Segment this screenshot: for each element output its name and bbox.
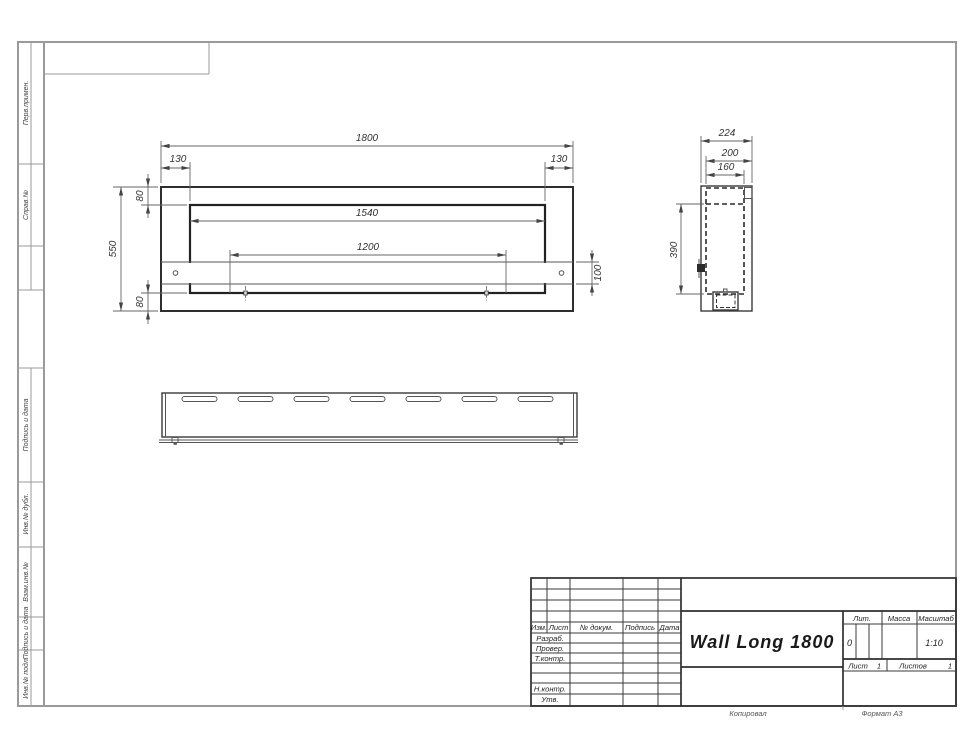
- svg-text:1800: 1800: [356, 133, 379, 144]
- drawing-sheet: Перв.примен. Справ.№ Подпись и дата Инв.…: [0, 0, 970, 749]
- role-razrab: Разраб.: [536, 634, 563, 643]
- dim-body-height: 390: [669, 204, 704, 294]
- side-top-box: [745, 188, 753, 199]
- margin-columns: Перв.примен. Справ.№ Подпись и дата Инв.…: [18, 42, 44, 706]
- plate-screw-left: [172, 438, 178, 445]
- svg-text:1200: 1200: [357, 242, 380, 253]
- outer-frame: [18, 42, 956, 706]
- lit-value: 0: [847, 638, 852, 648]
- svg-text:200: 200: [721, 148, 739, 159]
- svg-text:390: 390: [669, 241, 680, 258]
- front-view: 1800 130 130 1540 1200 550: [108, 133, 604, 324]
- bottom-screw-right: [485, 286, 488, 301]
- col-list: Лист: [548, 623, 569, 632]
- sheets-label: Листов: [898, 662, 927, 671]
- role-prover: Провер.: [536, 644, 564, 653]
- scale-value: 1:10: [925, 638, 943, 648]
- scale-label: Масштаб: [918, 614, 954, 623]
- role-tkontr: Т.контр.: [535, 654, 566, 663]
- svg-text:160: 160: [718, 162, 735, 173]
- bottom-view: [159, 393, 578, 445]
- mount-band-fill: [163, 263, 571, 283]
- title-block: Изм. Лист № докум. Подпись Дата Разраб. …: [531, 578, 956, 710]
- bottom-screw-left: [244, 286, 247, 301]
- role-utv: Утв.: [540, 695, 558, 704]
- margin-label-podpis1: Подпись и дата: [22, 398, 30, 451]
- bottom-outer-contour: [162, 393, 577, 437]
- col-doc: № докум.: [580, 623, 613, 632]
- margin-label-podpis2: Подпись и дата: [22, 606, 30, 659]
- dim-left-offset: 130: [161, 154, 190, 201]
- footer-format: Формат А3: [861, 709, 903, 718]
- drawing-canvas: Перв.примен. Справ.№ Подпись и дата Инв.…: [0, 0, 970, 749]
- sheet-footer: Копировал Формат А3: [729, 709, 903, 718]
- col-data: Дата: [658, 623, 679, 632]
- dim-total-width: 1800: [161, 133, 573, 183]
- svg-text:80: 80: [135, 190, 146, 202]
- top-left-stamp: [44, 42, 209, 74]
- dim-opening-width: 1540: [190, 208, 545, 221]
- svg-text:550: 550: [108, 240, 119, 257]
- mass-label: Масса: [888, 614, 910, 623]
- wall-plate-edge: [159, 440, 578, 443]
- margin-label-perv: Перв.примен.: [23, 81, 30, 126]
- col-podpis: Подпись: [625, 623, 655, 632]
- side-view: 224 200 160 390: [669, 128, 752, 311]
- side-bottom-box: [713, 289, 738, 310]
- col-izm: Изм.: [531, 623, 547, 632]
- footer-copied: Копировал: [729, 709, 767, 718]
- dim-inner-depth: 160: [706, 162, 744, 184]
- dim-total-height: 550: [108, 187, 158, 311]
- svg-text:100: 100: [593, 264, 604, 281]
- sheet-number: 1: [877, 662, 881, 671]
- lit-label: Лит.: [852, 614, 871, 623]
- svg-text:1540: 1540: [356, 208, 379, 219]
- sheet-frame: Перв.примен. Справ.№ Подпись и дата Инв.…: [18, 42, 956, 706]
- dim-band-height: 100: [576, 250, 604, 296]
- svg-text:130: 130: [551, 154, 568, 165]
- svg-text:80: 80: [135, 296, 146, 308]
- document-title: Wall Long 1800: [690, 632, 835, 652]
- vent-slots: [182, 397, 553, 402]
- svg-text:224: 224: [718, 128, 736, 139]
- dim-right-offset: 130: [545, 154, 573, 201]
- margin-label-inv-podl: Инв.№ подл.: [22, 657, 30, 699]
- sheet-label: Лист: [847, 662, 868, 671]
- margin-label-vzam: Взам.инв.№: [23, 562, 30, 602]
- margin-label-sprav: Справ.№: [23, 190, 30, 220]
- margin-label-inv-dubl: Инв.№ дубл.: [22, 493, 30, 534]
- role-nkontr: Н.контр.: [534, 685, 566, 694]
- sheets-total: 1: [948, 662, 952, 671]
- svg-text:130: 130: [170, 154, 187, 165]
- plate-screw-right: [558, 438, 564, 445]
